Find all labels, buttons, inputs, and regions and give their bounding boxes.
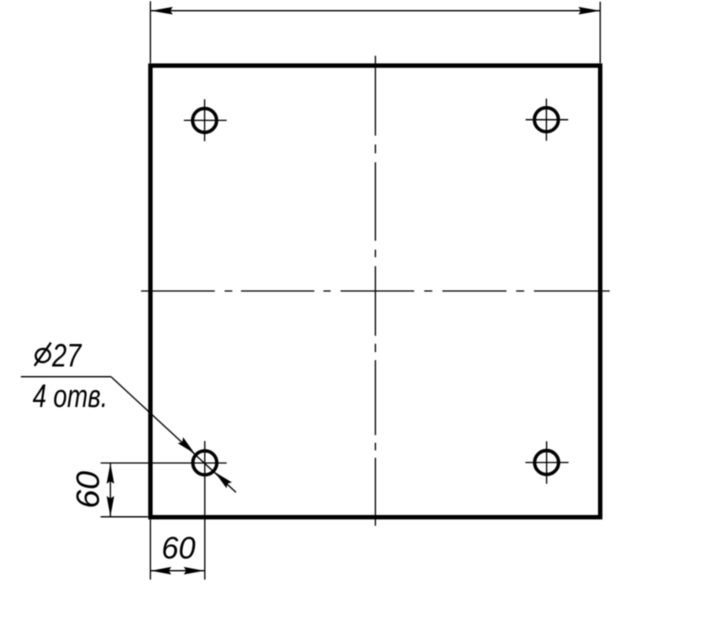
svg-text:60: 60: [162, 529, 196, 565]
svg-text:60: 60: [70, 471, 106, 509]
svg-text:27: 27: [51, 338, 82, 374]
svg-text:4 отв.: 4 отв.: [33, 378, 108, 414]
